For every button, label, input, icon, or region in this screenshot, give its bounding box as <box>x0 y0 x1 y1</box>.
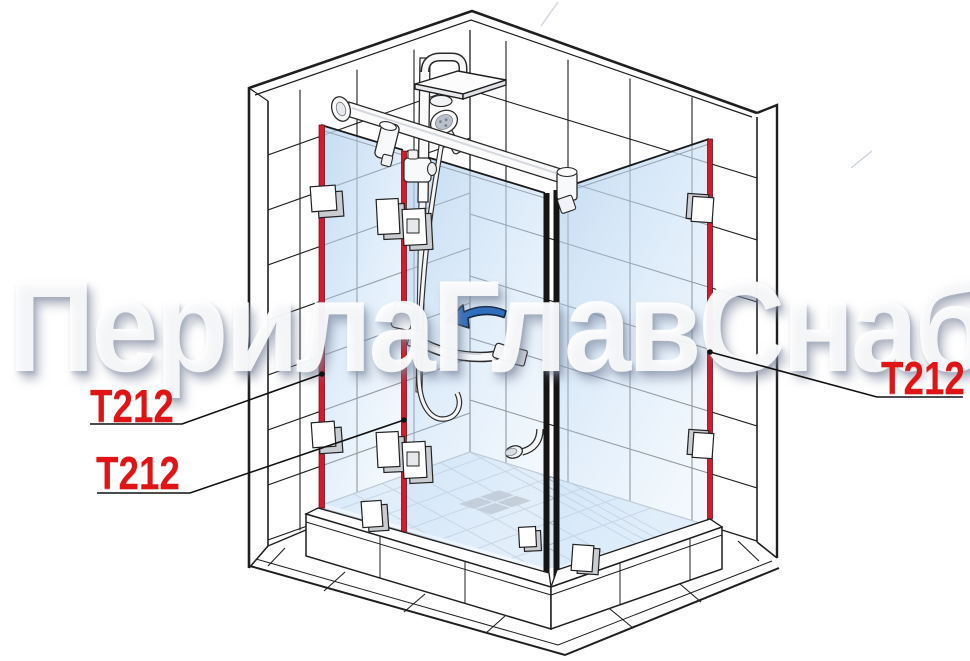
part-label-t212-left-lower: T212 <box>96 450 180 496</box>
leader-dot <box>319 371 325 377</box>
label-leader-lines <box>0 0 970 661</box>
leader-dot <box>707 349 713 355</box>
part-label-t212-right: T212 <box>881 355 965 401</box>
leader-dot <box>401 417 407 423</box>
part-label-t212-left-upper: T212 <box>90 383 174 429</box>
diagram-canvas: ПерилаГлавСнаб T212 T212 T212 <box>0 0 970 661</box>
